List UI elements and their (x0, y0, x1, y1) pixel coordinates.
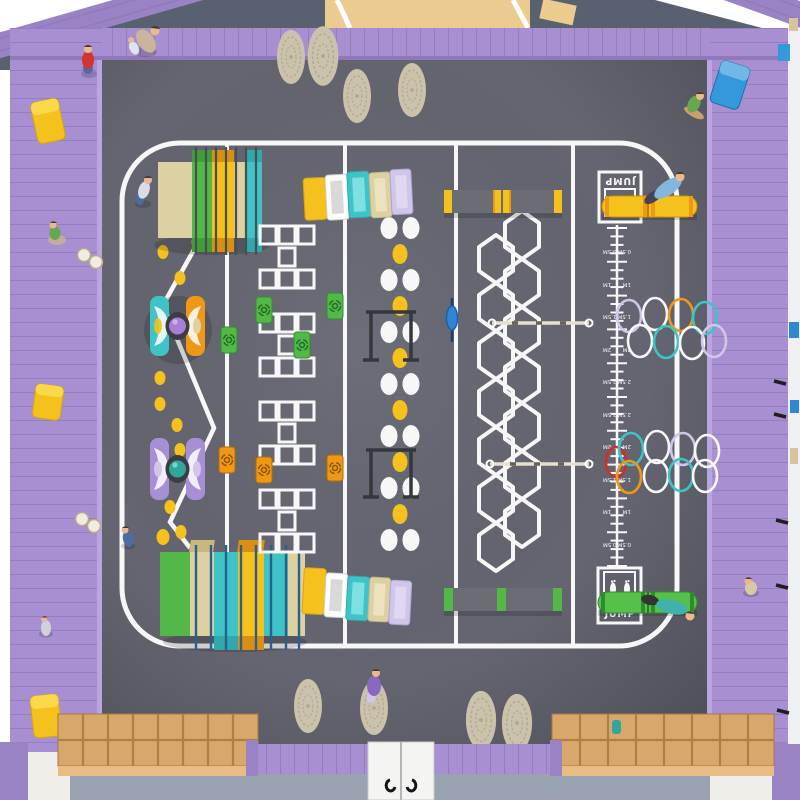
ruler-label: 0.5M (603, 248, 617, 254)
ruler-label: 2M (603, 346, 611, 352)
wall-right-edge (707, 58, 712, 752)
frame-rungs (196, 147, 256, 255)
sill-item-blue (789, 322, 799, 338)
ruler-label: 0.5M (603, 541, 617, 547)
climbing-frame-bottom (160, 540, 307, 652)
ruler-label: 1.5M (603, 313, 617, 319)
double-doors (368, 742, 434, 800)
balance-beam-top (444, 190, 562, 218)
cube-seat-yellow-3 (30, 694, 62, 739)
wall-top-edge (10, 56, 790, 60)
ruler-label: 1M (623, 508, 631, 514)
wall-corner-bottom-left (0, 742, 28, 800)
ruler-label: 2.5M (617, 378, 631, 384)
balance-rocker-station-top (144, 296, 212, 364)
wall-top (10, 28, 790, 60)
jump-label-top: JUMP (605, 175, 637, 186)
ruler-label: 2M (623, 443, 631, 449)
sill-item-blue (778, 44, 790, 61)
cubby-shelf-right (552, 714, 774, 776)
cube-seat-yellow-2 (32, 383, 64, 421)
cubby-shelf-left (58, 714, 258, 776)
wall-right (710, 28, 790, 752)
ruler-label: 1M (623, 281, 631, 287)
ruler-label: 2.5M (617, 411, 631, 417)
sill-item (789, 18, 798, 31)
kids-gym-top-view-render: JUMP 0.5M0.5M1M1M1.5M1.5M2M2M2.5M2.5M2.5… (0, 0, 800, 800)
sill-item (790, 448, 798, 464)
wall-left-edge (97, 58, 102, 752)
sill-item-blue (790, 400, 799, 413)
climbing-frame-top (154, 147, 270, 255)
balance-beam-bottom (444, 588, 562, 616)
ruler-label: 1.5M (617, 313, 631, 319)
wall-corner-bottom-right (772, 742, 800, 800)
ruler-label: 0.5M (617, 541, 631, 547)
balance-ball-purple (169, 318, 186, 335)
ruler-label: 2.5M (603, 378, 617, 384)
ruler-label: 1M (603, 281, 611, 287)
ruler-label: 2M (603, 443, 611, 449)
ruler-label: 2.5M (603, 411, 617, 417)
ruler-label: 0.5M (617, 248, 631, 254)
window-sill-right (788, 28, 800, 744)
corridor-band (325, 0, 530, 28)
balance-ball-teal (169, 461, 186, 478)
ruler-label: 1M (603, 508, 611, 514)
shoe-in-cubby (612, 720, 621, 734)
